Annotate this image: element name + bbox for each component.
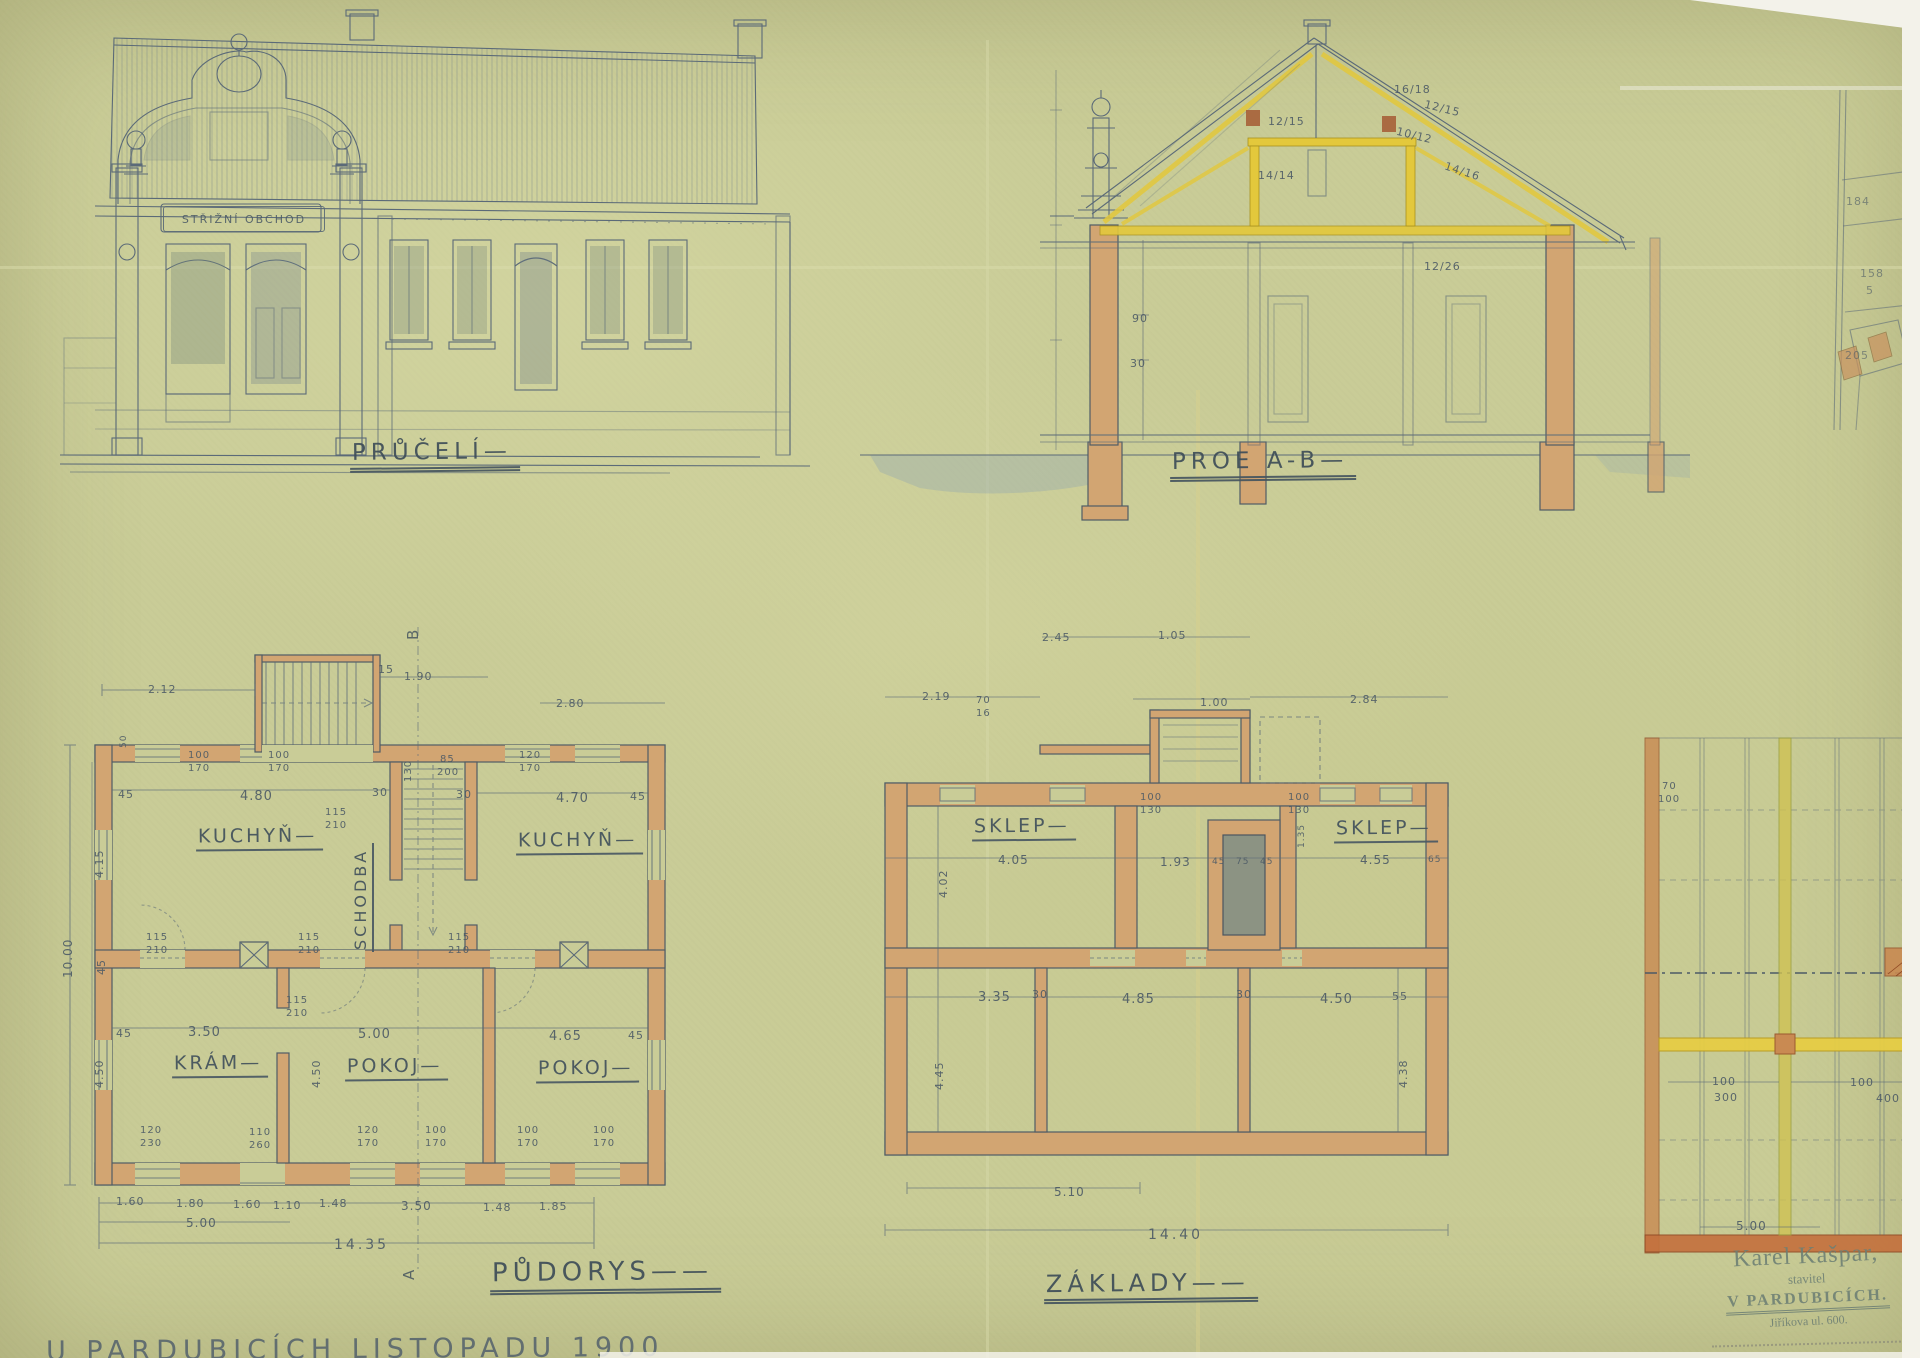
dim-label: 2.45	[1042, 632, 1071, 643]
dim-label: 1.80	[176, 1198, 205, 1209]
dim-label: 4.65	[549, 1030, 582, 1043]
dim-label: 4.38	[1398, 1060, 1409, 1089]
dim-label: 210	[325, 821, 347, 831]
dim-label: 4.55	[1360, 854, 1391, 866]
dim-label: 5.00	[186, 1217, 217, 1229]
foundation-plan-drawing	[878, 625, 1468, 1275]
dim-label: 10.00	[62, 939, 74, 978]
dim-label: 4.05	[998, 854, 1029, 866]
dim-label: 100	[1288, 793, 1310, 803]
dim-label: 1.48	[483, 1202, 512, 1213]
dim-label: 3.50	[401, 1200, 432, 1212]
dim-label: 100	[1712, 1076, 1736, 1087]
shop-sign: STŘIŽNÍ OBCHOD	[163, 206, 325, 232]
dim-label: 115	[325, 808, 347, 818]
dim-label: 115	[448, 933, 470, 943]
dim-label: 170	[357, 1139, 379, 1149]
dim-label: 115	[298, 933, 320, 943]
room-label-room1: POKOJ—	[345, 1056, 449, 1082]
dim-label: 45	[118, 789, 134, 800]
facade-title: PRŮČELÍ—	[350, 439, 520, 473]
dim-label: 85	[440, 755, 455, 765]
dim-label: 130	[404, 760, 414, 782]
dim-label: 1.60	[116, 1196, 145, 1207]
dim-label: 65	[1428, 856, 1441, 865]
dim-label: 5.10	[1054, 1186, 1085, 1198]
dim-label: 400	[1876, 1093, 1900, 1104]
facade-elevation-drawing	[60, 8, 810, 478]
section-marker-b: B	[404, 630, 422, 640]
dim-label: 2.12	[148, 684, 177, 695]
dim-label: 45	[116, 1028, 132, 1039]
dim-label: 1.10	[273, 1200, 302, 1211]
dim-label: 2.19	[922, 691, 951, 702]
dim-label: 14/14	[1258, 170, 1295, 181]
parcel-number: 184	[1846, 196, 1870, 207]
dim-label: 50	[120, 735, 129, 748]
dim-label: 1.60	[233, 1199, 262, 1210]
dim-label: 115	[286, 996, 308, 1006]
dim-label: 170	[425, 1139, 447, 1149]
scanned-blueprint-page: STŘIŽNÍ OBCHOD PRŮČELÍ—	[0, 0, 1920, 1358]
dim-label: 115	[146, 933, 168, 943]
dim-label: 12/15	[1268, 116, 1305, 127]
dim-label: 1.48	[319, 1198, 348, 1209]
dim-label: 4.50	[311, 1060, 322, 1089]
dim-label: 45	[1260, 858, 1273, 867]
builder-stamp: Karel Kašpar, stavitel V PARDUBICÍCH. Ji…	[1696, 1238, 1918, 1334]
dim-label: 100	[517, 1126, 539, 1136]
dim-label: 230	[140, 1139, 162, 1149]
dim-label: 30	[1032, 989, 1048, 1000]
dim-label: 1.00	[1200, 697, 1229, 708]
dim-label: 16/18	[1394, 84, 1431, 95]
dim-label: 1.90	[404, 671, 433, 682]
dim-label: 130	[1140, 806, 1162, 816]
dim-label: 15	[378, 664, 394, 675]
scan-edge-right	[1902, 0, 1920, 1358]
dim-label: 100	[1140, 793, 1162, 803]
dim-label: 100	[425, 1126, 447, 1136]
scan-edge-top-right-wedge	[1690, 0, 1920, 30]
section-marker-a: A	[400, 1270, 418, 1280]
dim-label: 210	[286, 1009, 308, 1019]
dim-label: 5.00	[1736, 1220, 1767, 1232]
dim-label: 5.00	[358, 1028, 391, 1041]
dim-label: 210	[298, 946, 320, 956]
dim-label: 4.45	[934, 1062, 945, 1091]
room-label-kitchen-left: KUCHYŇ—	[196, 825, 323, 851]
dim-label: 110	[249, 1128, 271, 1138]
dim-label: 4.85	[1122, 993, 1155, 1006]
dim-label: 3.50	[188, 1026, 221, 1039]
dim-label: 14.40	[1148, 1228, 1203, 1242]
dim-label: 170	[519, 764, 541, 774]
dim-label: 12/26	[1424, 261, 1461, 272]
floor-plan-title: PŮDORYS——	[490, 1257, 721, 1295]
dim-label: 2.84	[1350, 694, 1379, 705]
room-label-hall: SCHODBA	[352, 843, 374, 952]
dim-label: 210	[146, 946, 168, 956]
dim-label: 170	[188, 764, 210, 774]
dim-label: 4.15	[94, 850, 105, 879]
parcel-number: 5	[1866, 285, 1874, 296]
dim-label: 4.50	[94, 1060, 105, 1089]
dim-label: 30	[372, 787, 388, 798]
room-label-cellar-left: SKLEP—	[972, 816, 1076, 842]
dim-label: 100	[593, 1126, 615, 1136]
dim-label: 300	[1714, 1092, 1738, 1103]
dim-label: 170	[593, 1139, 615, 1149]
foundation-title: ZÁKLADY——	[1044, 1269, 1258, 1305]
dim-label: 3.35	[978, 991, 1011, 1004]
dim-label: 260	[249, 1141, 271, 1151]
parcel-number: 158	[1860, 268, 1884, 279]
dim-label: 170	[268, 764, 290, 774]
dim-label: 45	[630, 791, 646, 802]
dim-label: 130	[1288, 806, 1310, 816]
dim-label: 4.80	[240, 790, 273, 803]
scan-edge-bottom	[600, 1352, 1920, 1358]
dim-label: 30	[1130, 358, 1146, 369]
paper-edge-dots	[1712, 1340, 1904, 1347]
dim-label: 45	[96, 959, 107, 975]
dim-label: 120	[519, 751, 541, 761]
dim-label: 4.02	[938, 870, 949, 899]
dim-label: 4.70	[556, 792, 589, 805]
dim-label: 45	[1212, 858, 1225, 867]
room-label-shop: KRÁM—	[172, 1053, 269, 1079]
dim-label: 2.80	[556, 698, 585, 709]
dim-label: 120	[357, 1126, 379, 1136]
dim-label: 30	[456, 789, 472, 800]
dim-label: 90	[1132, 313, 1148, 324]
section-title: PROE A-B—	[1170, 448, 1357, 482]
dim-label: 210	[448, 946, 470, 956]
dim-label: 1.35	[1298, 824, 1307, 848]
dim-label: 200	[437, 768, 459, 778]
dim-label: 30	[1236, 989, 1252, 1000]
dim-label: 14.35	[334, 1238, 389, 1252]
dim-label: 170	[517, 1139, 539, 1149]
dim-label: 70	[976, 696, 991, 706]
footer-place-date-note: U PARDUBICÍCH LISTOPADU 1900	[46, 1332, 665, 1358]
dim-label: 75	[1236, 858, 1249, 867]
dim-label: 100	[1658, 795, 1680, 805]
dim-label: 100	[188, 751, 210, 761]
ceiling-joist-plan-drawing	[1640, 730, 1920, 1260]
dim-label: 1.93	[1160, 856, 1191, 868]
dim-label: 1.85	[539, 1201, 568, 1212]
room-label-kitchen-right: KUCHYŇ—	[516, 829, 643, 855]
dim-label: 4.50	[1320, 993, 1353, 1006]
parcel-number: 205	[1845, 350, 1869, 361]
dim-label: 16	[976, 709, 991, 719]
dim-label: 70	[1662, 782, 1677, 792]
dim-label: 1.05	[1158, 630, 1187, 641]
dim-label: 100	[268, 751, 290, 761]
dim-label: 100	[1850, 1077, 1874, 1088]
dim-label: 120	[140, 1126, 162, 1136]
dim-label: 45	[628, 1030, 644, 1041]
room-label-cellar-right: SKLEP—	[1334, 818, 1438, 844]
dim-label: 55	[1392, 991, 1408, 1002]
room-label-room2: POKOJ—	[536, 1058, 640, 1084]
